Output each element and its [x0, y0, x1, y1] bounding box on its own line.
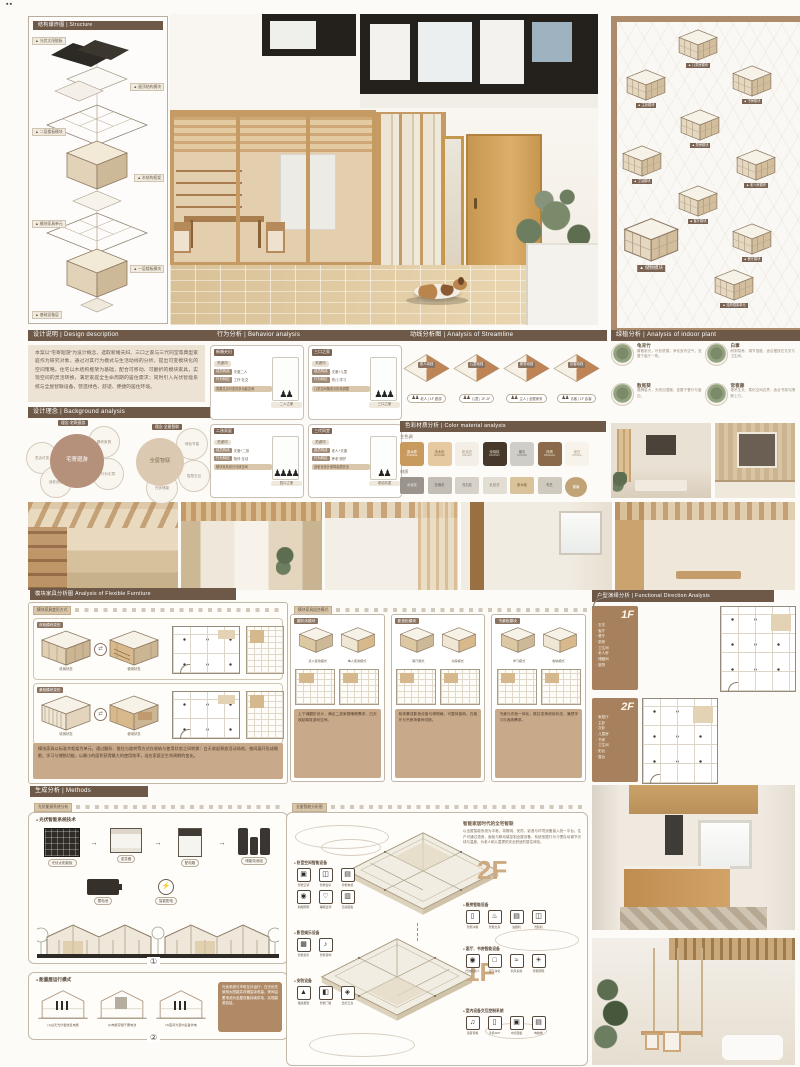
color-swatch: 棕褐 #8a6a4a	[538, 442, 562, 466]
device-icon: ☀	[532, 954, 546, 968]
floor-watermark-2f: 2F	[477, 857, 507, 883]
mode-label: 收纳模式	[552, 658, 564, 663]
need-note: 儿童空间随成长阶段调整	[312, 386, 370, 392]
floor-label: 1F	[596, 609, 634, 621]
device-label: 中控面板	[511, 1031, 523, 1035]
swatch-hex: #8a6a4a	[544, 454, 555, 458]
device-icon: ◉	[466, 954, 480, 968]
device-item: ◈监控云台	[338, 986, 357, 1005]
color-swatch: 深胡桃 #46392c	[483, 442, 507, 466]
device-item: ≈新风系统	[507, 954, 526, 973]
plan-drawing	[172, 626, 240, 674]
bedroom-device-group: 卧室空间智能设备 ▣智能空调◫智能窗帘▤智能电视◉助眠照明♡睡眠监测▥温感面板	[294, 861, 360, 909]
cloud-outline	[309, 1033, 415, 1057]
house-section: (1)白天光伏板收集电能	[37, 986, 89, 1027]
pv-card-title: 光伏智能系统技术	[36, 817, 76, 823]
device-item: ◉助眠照明	[294, 890, 313, 909]
color-swatch: 奶油白 #f4efe6	[455, 442, 479, 466]
isometric-plan-icon	[403, 344, 450, 392]
device-label: 智能冰箱	[467, 925, 479, 929]
swatch-name: 布艺	[546, 483, 553, 488]
state-label: 使用状态	[108, 732, 160, 737]
plant-item: 常春藤 垂吊生长，柔化空间边界，适合书架与隔断上方。	[705, 383, 796, 420]
attr-key: 成员构成	[214, 369, 232, 375]
attr-key: 成员构成	[312, 448, 330, 454]
color-swatch: 暖灰 #cfcdc8	[510, 442, 534, 466]
furniture-module-cards: 翻折床模块 双人使用模式单人使用模式 上下铺翻折设计，满足二孩家庭睡眠需求，白天…	[290, 614, 586, 782]
floor-plan-drawing	[642, 698, 718, 784]
circulation-diagrams: 老人动线 ♟♟老人 | 1F 廻游 儿童动线 ♟♟儿童 | 1F-2F 家务动线…	[403, 344, 601, 426]
venn-center-1: 宅寄廻游	[50, 434, 104, 488]
group-title: 室内设备交互控制系统	[463, 1009, 581, 1014]
material-swatch: 藤编	[565, 477, 587, 497]
keyword-pill: 关键词	[312, 361, 329, 367]
furniture-card-tag: 翻折床模块	[294, 618, 318, 624]
swatch-hex: #c99a5e	[407, 454, 418, 458]
circulation-tag: 儿童动线	[468, 362, 486, 368]
furniture-axon-icon	[297, 626, 335, 654]
device-icon: ♫	[466, 1016, 480, 1030]
module-cube-drawing	[734, 148, 778, 182]
smart-intro: 智能家居时代的全宅智联 以全屋智能系统为中枢，将照明、安防、影音与环境设备接入统…	[463, 821, 581, 846]
module-cube-label: ▲ 餐厅模块	[742, 257, 763, 262]
person-silhouettes-icon: ♟♟	[377, 468, 389, 479]
interior-elevation-render-1	[611, 423, 711, 498]
elevation-drawing	[246, 691, 284, 739]
attr-value: 老人+夫妻	[332, 448, 348, 453]
furniture-card-drawings: 学习模式收纳模式	[496, 626, 581, 705]
figures-caption: 老幼共居	[369, 481, 400, 487]
elevation-drawing	[497, 669, 537, 705]
building-section-drawing	[37, 913, 279, 959]
furniture-header: 模块家具分析图 Analysis of Flexible Furniture	[30, 588, 236, 600]
house-caption: (1)白天光伏板收集电能	[37, 1023, 89, 1027]
plant-description: 耐阴易养，调节湿度，适合摆放在玄关与卫生间。	[731, 349, 796, 360]
plant-photo	[705, 383, 728, 406]
mode-label: 学习模式	[513, 658, 525, 663]
device-label: 智能空调	[298, 883, 310, 887]
need-note: 模块家具划分兄妹空间	[214, 464, 272, 470]
device-label: 智能灶具	[489, 925, 501, 929]
pv-system-card: 光伏智能系统技术 光伏太阳能板 → 逆变器 → 配电箱 → 储能电池组 蓄电池 …	[28, 812, 288, 964]
pv-flow-diagram: 光伏太阳能板 → 逆变器 → 配电箱 → 储能电池组	[37, 828, 279, 867]
device-item: ▤电脑端	[529, 1016, 548, 1035]
module-cube-label: ▲ 卫浴模块	[632, 179, 653, 184]
circulation-tag: 老人动线	[418, 362, 436, 368]
plant-description: 蒸腾量大，天然加湿器，宜置于餐厅与窗边。	[637, 388, 702, 399]
energy-house-card: 能量屋运行模式 (1)白天光伏板收集电能 (2)电能存储于蓄电池 (3)夜间为室…	[28, 972, 288, 1040]
counter	[715, 480, 795, 499]
module-cube-label: ▲ 主卧模块	[636, 103, 657, 108]
attr-key: 行为特征	[214, 456, 232, 462]
device-icon: ▤	[532, 1016, 546, 1030]
white-planter	[526, 243, 598, 325]
circled-number-2: ②	[147, 1033, 160, 1042]
color-swatch: 浅木色 #e5c9a0	[428, 442, 452, 466]
patterned-floor	[620, 907, 766, 930]
white-sofa	[722, 1035, 783, 1060]
device-item: ♪智能音响	[316, 938, 335, 957]
swatch-hex: #46392c	[489, 454, 500, 458]
ruler-tag: 光伏能源系统分析	[34, 803, 72, 812]
device-item: ▲烟感报警	[294, 986, 313, 1005]
group-title: 安防设备	[294, 979, 360, 984]
plant-photo	[611, 383, 634, 406]
module-cube-drawing	[712, 268, 756, 302]
circulation-item: 访客动线 ♟♟访客 | 1F 会客	[553, 344, 600, 426]
device-icon: □	[488, 954, 502, 968]
device-icon: ▣	[297, 868, 311, 882]
plant-item: 龟背竹 喜散射光，叶形舒展，净化室内空气，宜置于客厅一角。	[611, 343, 702, 380]
furniture-card: 书桌柜模块 学习模式收纳模式 书桌与衣柜一体化，推拉变换使用状态，兼顾学习与收纳…	[491, 614, 586, 782]
structure-exploded-panel: 结构爆炸图 | Structure ▲ 光伏太阳能板▲ 屋顶结构模块▲ 二层楼板…	[28, 16, 168, 324]
module-cube-drawing	[620, 216, 682, 264]
colors-header: 色彩材质分析 | Color material analysis	[400, 421, 606, 432]
concept-tag-2: 理念·全屋智联	[152, 424, 182, 430]
plant	[613, 472, 627, 494]
mode-label: 书房模式	[451, 658, 463, 663]
material-swatch: 水泥灰	[400, 477, 424, 494]
flow-label: 蓄电池	[94, 897, 113, 905]
device-item: ▣中控面板	[507, 1016, 526, 1035]
swatch-name: 亚麻灰	[435, 483, 445, 488]
keyword-pill: 关键词	[214, 361, 231, 367]
indoor-plant	[592, 971, 631, 1065]
open-state-cube: 使用状态	[108, 629, 160, 672]
closed-state-cube: 收纳状态	[40, 629, 92, 672]
plant-description: 垂吊生长，柔化空间边界，适合书架与隔断上方。	[731, 388, 796, 399]
arrow-icon: →	[90, 838, 98, 847]
module-cube: ▲ 结构框架单元	[711, 268, 757, 308]
plants-grid: 龟背竹 喜散射光，叶形舒展，净化室内空气，宜置于客厅一角。 白掌 耐阴易养，调节…	[611, 343, 795, 419]
furniture-card-tag: 书桌柜模块	[495, 618, 519, 624]
device-icon: ◈	[341, 986, 355, 1000]
behavior-card: 三口之家 关键词 成员构成夫妻+儿童 行为特征育儿·学习 儿童空间随成长阶段调整…	[308, 345, 402, 420]
device-icon: ▤	[510, 910, 524, 924]
device-item: □空气净化	[485, 954, 504, 973]
circulation-tag: 访客动线	[568, 362, 586, 368]
open-state-cube: 使用状态	[108, 694, 160, 737]
swatch-name: 水泥灰	[407, 483, 417, 488]
rendering-photo-strip	[28, 502, 795, 590]
av-device-group: 影音娱乐设备 ▦智能投影♪智能音响	[294, 931, 360, 957]
swap-arrow-icon: ⇄	[94, 708, 107, 721]
state-label: 收纳状态	[40, 667, 92, 672]
module-cube: ▲ 书房模块	[729, 64, 775, 104]
floor-block-1f: 1F 玄关客厅餐厅厨房卫生间老人房储藏间庭院	[592, 606, 638, 690]
module-cube-label: ▲ 书房模块	[742, 99, 763, 104]
device-label: 空气净化	[489, 969, 501, 973]
circled-number-1: ①	[147, 957, 160, 966]
keyword-pill: 关键词	[312, 440, 329, 446]
material-swatch: 亚麻灰	[428, 477, 452, 494]
furniture-row-desk: 桌柜模块变形 收纳状态 ⇄ 使用状态	[33, 683, 283, 745]
tv-wall	[646, 435, 676, 455]
distribution-box-icon	[178, 828, 202, 857]
battery-bank-icon	[238, 828, 270, 855]
rendering-photo	[181, 502, 322, 590]
door-sidelight	[442, 136, 464, 272]
device-item: ♡睡眠监测	[316, 890, 335, 909]
plans-header: 户型演绎分析 | Functional Direction Analysis	[592, 590, 774, 602]
device-label: 智能电视	[342, 883, 354, 887]
figures-box: ♟♟♟♟	[272, 436, 299, 480]
dining-rendering	[592, 938, 795, 1065]
attr-key: 行为特征	[312, 377, 330, 383]
folding-doors	[376, 112, 446, 270]
figures-caption: 三口之家	[369, 402, 400, 408]
swatch-hex: #e5c9a0	[434, 454, 445, 458]
swatch-name: 藤编	[573, 485, 580, 490]
furniture-note: 模块家具以标准木框架为单元，通过翻折、推拉与旋转等方式在收纳与使用状态之间转换：…	[33, 743, 283, 779]
glass-partition	[653, 948, 655, 1037]
device-item: ☀智能照明	[529, 954, 548, 973]
group-title: 卧室空间智能设备	[294, 861, 360, 866]
row-tag: 床柜模块变形	[37, 622, 63, 628]
behavior-card: 三代同堂 关键词 成员构成老人+夫妻 行为特征养老·照护 适老化设计保障起居安全…	[308, 424, 402, 499]
isometric-plan-icon	[503, 344, 550, 392]
circulation-caption: ♟♟主人 | 全屋家务	[506, 394, 546, 403]
device-label: 扫地机器人	[465, 969, 479, 973]
device-icon: ◫	[532, 910, 546, 924]
figures-box: ♟♟	[370, 436, 397, 480]
plan-drawing	[172, 691, 240, 739]
device-label: 智能窗帘	[320, 883, 332, 887]
need-note: 需要灵活可变的多功能空间	[214, 386, 272, 392]
device-item: ♨智能灶具	[485, 910, 504, 929]
module-cube-drawing	[730, 222, 774, 256]
circulation-item: 老人动线 ♟♟老人 | 1F 廻游	[403, 344, 450, 426]
dotted-ruler	[75, 608, 283, 612]
device-item: ▤智能电视	[338, 868, 357, 887]
exploded-axon-drawing	[29, 33, 165, 319]
rendering-photo	[28, 502, 178, 590]
device-icon: ▤	[341, 868, 355, 882]
plant-item: 散尾葵 蒸腾量大，天然加湿器，宜置于餐厅与窗边。	[611, 383, 702, 420]
device-label: 电脑端	[534, 1031, 543, 1035]
device-label: 温感面板	[342, 905, 354, 909]
mode-label: 双人使用模式	[308, 658, 327, 663]
color-material-block: 主色调 原木棕 #c99a5e 浅木色 #e5c9a0 奶油白 #f4efe6 …	[400, 433, 600, 498]
mode-label: 单人使用模式	[348, 658, 367, 663]
furniture-card-note: 上下铺翻折设计，满足二孩家庭睡眠需求，白天收起释放游戏空间。	[294, 709, 381, 778]
kitchen-device-group: 厨房智能设备 ▯智能冰箱♨智能灶具▤油烟机◫洗碗机	[463, 903, 581, 929]
device-item: ♫语音音箱	[463, 1016, 482, 1035]
elevation-drawing	[396, 669, 436, 705]
module-cube: ▲ 主卧模块	[623, 68, 669, 108]
figures-caption: 二人之家	[271, 402, 302, 408]
wood-ceiling	[669, 938, 795, 960]
row-tag: 桌柜模块变形	[37, 687, 63, 693]
device-icon: ◉	[297, 890, 311, 904]
people-icon: ♟♟	[463, 396, 470, 401]
furniture-transform-panel: 模块家具变形方式 床柜模块变形 收纳状态 ⇄ 使用状态 桌柜模块变形 收纳状态 …	[28, 602, 288, 784]
module-cube: ▲ 卫浴模块	[619, 144, 665, 184]
attr-key: 成员构成	[214, 448, 232, 454]
house-section: (2)电能存储于蓄电池	[96, 986, 148, 1027]
solar-panel-icon	[44, 828, 80, 857]
furniture-card: 翻折床模块 双人使用模式单人使用模式 上下铺翻折设计，满足二孩家庭睡眠需求，白天…	[290, 614, 385, 782]
group-title: 影音娱乐设备	[294, 931, 360, 936]
device-icon: ♨	[488, 910, 502, 924]
material-swatch: 原木板	[510, 477, 534, 494]
arrow-icon: →	[218, 838, 226, 847]
upper-window	[262, 14, 356, 56]
device-label: 语音音箱	[467, 1031, 479, 1035]
behavior-card: 新婚夫妇 关键词 成员构成夫妻二人 行为特征工作·社交 需要灵活可变的多功能空间…	[210, 345, 304, 420]
rendering-photo	[615, 502, 795, 590]
house-section: (3)夜间为室内设备供电	[155, 986, 207, 1027]
color-swatch: 原木棕 #c99a5e	[400, 442, 424, 466]
elevation-drawing	[440, 669, 480, 705]
clerestory-windows	[360, 14, 598, 108]
device-item: ◫智能窗帘	[316, 868, 335, 887]
device-label: 手机APP	[489, 1031, 501, 1035]
attr-value: 养老·照护	[332, 456, 347, 461]
attr-value: 夫妻二人	[234, 369, 248, 374]
plant-photo	[611, 343, 634, 366]
device-icon: ▯	[466, 910, 480, 924]
figures-box: ♟♟	[272, 357, 299, 401]
floor-label: 2F	[596, 701, 634, 713]
module-cube-drawing	[730, 64, 774, 98]
furniture-axon-icon	[440, 626, 478, 654]
device-icon: ▣	[510, 1016, 524, 1030]
device-icon: ≈	[510, 954, 524, 968]
arrow-icon: →	[154, 838, 162, 847]
device-item: ▥温感面板	[338, 890, 357, 909]
plant-item: 白掌 耐阴易养，调节湿度，适合摆放在玄关与卫生间。	[705, 343, 796, 380]
smart-paragraph: 以全屋智能系统为中枢，将照明、安防、影音与环境设备接入统一平台。住户可通过语音、…	[463, 829, 581, 846]
module-cube-drawing	[676, 184, 720, 218]
device-label: 智能音响	[320, 953, 332, 957]
room-name: 露台	[596, 755, 634, 761]
module-cubes: ▲ 儿童房模块 ▲ 书房模块 ▲ 主卧模块	[617, 22, 800, 328]
color-swatch: 米白 #f7f3ea	[565, 442, 589, 466]
flow-label: 逆变器	[117, 855, 136, 863]
swatch-hex: #f4efe6	[462, 454, 471, 458]
sofa	[635, 480, 687, 491]
figures-caption: 四口之家	[271, 481, 302, 487]
range-hood	[665, 815, 683, 854]
design-description-text: 本案以“宅寄廻游”为设计概念，选取新婚夫妇、三口之家与三代同堂等典型家庭作为研究…	[28, 345, 205, 402]
device-label: 油烟机	[512, 925, 521, 929]
smart-title: 智能家居时代的全宅智联	[463, 821, 581, 827]
elevation-drawing	[295, 669, 335, 705]
interior-elevation-render-2	[715, 423, 795, 498]
elevation-drawing	[246, 626, 284, 674]
module-cube: ▲ 餐厅模块	[729, 222, 775, 262]
plant-photo	[705, 343, 728, 366]
device-item: ▯手机APP	[485, 1016, 504, 1035]
circulation-caption: ♟♟老人 | 1F 廻游	[407, 394, 445, 403]
furniture-card: 影音柜模块 客厅模式书房模式 柜体集成影音设备与储物格，可整体旋转，在客厅与书房…	[391, 614, 486, 782]
family-type-tag: 二孩家庭	[214, 428, 234, 435]
device-label: 智能门锁	[320, 1001, 332, 1005]
device-item: ◧智能门锁	[316, 986, 335, 1005]
circulation-item: 家务动线 ♟♟主人 | 全屋家务	[503, 344, 550, 426]
elevation-drawing	[541, 669, 581, 705]
device-item: ▯智能冰箱	[463, 910, 482, 929]
attr-value: 夫妻+儿童	[332, 369, 348, 374]
material-swatch: 浅石纹	[455, 477, 479, 494]
energy-card-title: 能量屋运行模式	[36, 977, 71, 983]
window	[737, 432, 776, 468]
mode-label: 客厅模式	[412, 658, 424, 663]
device-icon: ♪	[319, 938, 333, 952]
furniture-axon-icon	[499, 626, 537, 654]
furniture-axon-icon	[339, 626, 377, 654]
group-title: 客厅、书房智能设备	[463, 947, 581, 952]
floor-plan-drawing	[720, 606, 796, 692]
attr-key: 成员构成	[312, 369, 330, 375]
device-icon: ◫	[319, 868, 333, 882]
house-mode-diagrams: (1)白天光伏板收集电能 (2)电能存储于蓄电池 (3)夜间为室内设备供电	[37, 986, 207, 1027]
people-icon: ♟♟	[411, 396, 418, 401]
device-item: ▣智能空调	[294, 868, 313, 887]
module-cube-drawing	[678, 108, 722, 142]
material-swatch: 乳胶漆	[483, 477, 507, 494]
pv-secondary-row: 蓄电池 ⚡智能配电	[87, 879, 177, 905]
circulation-caption: ♟♟儿童 | 1F-2F	[459, 394, 495, 403]
isometric-plan-icon	[553, 344, 600, 392]
behavior-cards: 新婚夫妇 关键词 成员构成夫妻二人 行为特征工作·社交 需要灵活可变的多功能空间…	[210, 345, 402, 498]
material-group-label: 材质	[400, 469, 600, 475]
palette-group-label: 主色调	[400, 434, 600, 440]
interior-dining-view	[170, 110, 376, 266]
device-icon: ♡	[319, 890, 333, 904]
smart-home-card: 2F 1F 卧室空间智能设备 ▣智能空调◫智能窗帘▤智能电视◉助眠照明♡睡眠监测…	[286, 812, 588, 1066]
material-swatch: 布艺	[538, 477, 562, 494]
attr-value: 陪伴·互动	[234, 456, 249, 461]
module-cube: ▲ 厨房模块	[677, 108, 723, 148]
living-device-group: 客厅、书房智能设备 ◉扫地机器人□空气净化≈新风系统☀智能照明	[463, 947, 581, 973]
concept-header: 设计理念 | Background analysis	[28, 407, 215, 418]
kitchen-cabinets	[624, 866, 730, 907]
circulation-tag: 家务动线	[518, 362, 536, 368]
flow-label: 储能电池组	[241, 857, 267, 865]
floor-plan-drawing	[592, 606, 594, 608]
rendering-photo	[461, 502, 612, 590]
circulation-header: 动线分析图 | Analysis of Streamline	[405, 330, 607, 341]
rendering-photo	[325, 502, 458, 590]
module-cube-drawing	[624, 68, 668, 102]
attr-value: 育儿·学习	[332, 377, 347, 382]
device-label: 睡眠监测	[320, 905, 332, 909]
state-label: 使用状态	[108, 667, 160, 672]
person-silhouettes-icon: ♟♟♟	[374, 389, 392, 400]
kitchen-rendering	[592, 785, 795, 930]
group-title: 厨房智能设备	[463, 903, 581, 908]
closed-state-cube: 收纳状态	[40, 694, 92, 737]
furniture-card-note: 柜体集成影音设备与储物格，可整体旋转，在客厅与书房场景间切换。	[395, 709, 482, 778]
device-icon: ▦	[297, 938, 311, 952]
people-icon: ♟♟	[561, 396, 568, 401]
flow-label: 光伏太阳能板	[48, 859, 77, 867]
device-item: ▤油烟机	[507, 910, 526, 929]
sleeping-dog	[414, 284, 460, 299]
device-icon: ▥	[341, 890, 355, 904]
device-label: 新风系统	[511, 969, 523, 973]
security-device-group: 安防设备 ▲烟感报警◧智能门锁◈监控云台	[294, 979, 360, 1005]
module-cube-drawing	[676, 28, 720, 62]
figures-box: ♟♟♟	[370, 357, 397, 401]
design-description-header: 设计说明 | Design description	[28, 330, 215, 341]
pv-ruler: 光伏能源系统分析	[34, 803, 284, 812]
swatch-name: 浅石纹	[462, 483, 472, 488]
flow-label: 智能配电	[155, 897, 177, 905]
attr-key: 行为特征	[214, 377, 232, 383]
